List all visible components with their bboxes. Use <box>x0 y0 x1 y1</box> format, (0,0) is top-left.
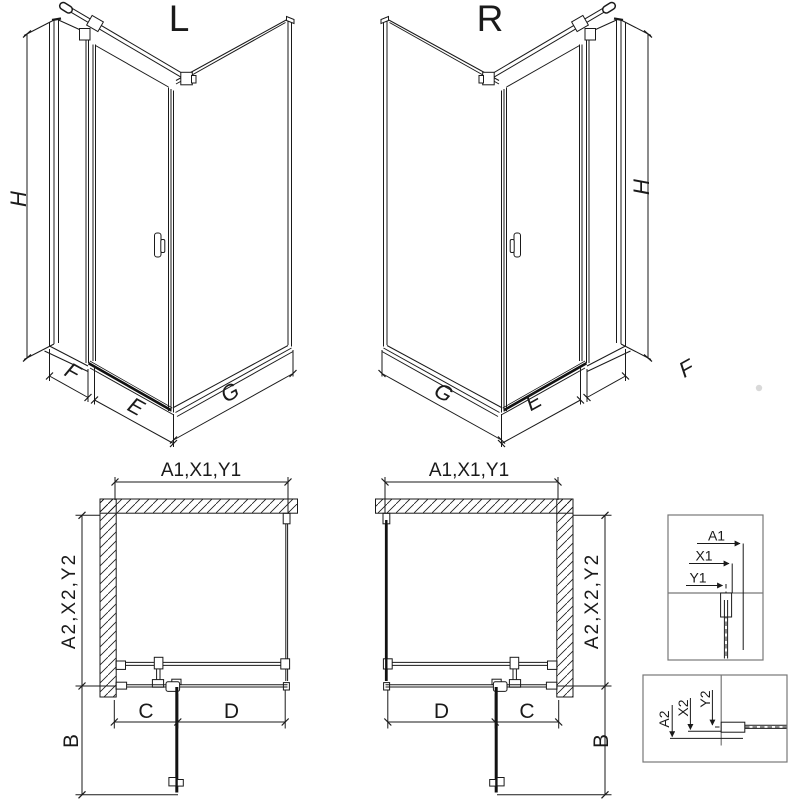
detail-y2-label: Y2 <box>697 690 713 707</box>
detail-a2-label: A2 <box>656 710 672 727</box>
plan-left-swing-dim-label: B <box>60 734 83 748</box>
plan-right-top-dim-label: A1,X1,Y1 <box>429 460 509 481</box>
technical-drawing-canvas: L H F E G R H F E G A1,X1,Y1 A2,X2,Y2 B … <box>0 0 800 800</box>
variant-label-right: R <box>477 0 504 39</box>
plan-right-swing-dim-label: B <box>590 734 613 748</box>
plan-right-side-dim-label: A2,X2,Y2 <box>582 553 603 649</box>
drawing-page: L H F E G R H F E G A1,X1,Y1 A2,X2,Y2 B … <box>0 0 800 800</box>
detail-x1-label: X1 <box>695 548 712 564</box>
watermark-dot <box>756 385 762 391</box>
dim-label-h-right: H <box>629 179 654 195</box>
plan-right-dim-d-label: D <box>434 700 449 723</box>
detail-y1-label: Y1 <box>689 570 706 586</box>
plan-right-dim-c-label: C <box>519 700 534 723</box>
detail-a1-label: A1 <box>708 528 725 544</box>
detail-x2-label: X2 <box>675 699 691 716</box>
variant-label-left: L <box>169 0 190 39</box>
plan-left-side-dim-label: A2,X2,Y2 <box>59 553 80 649</box>
plan-left-dim-c-label: C <box>138 700 153 723</box>
plan-left-dim-d-label: D <box>224 700 239 723</box>
dim-label-h-left: H <box>6 191 31 207</box>
paper-background <box>0 0 800 800</box>
plan-left-top-dim-label: A1,X1,Y1 <box>161 460 241 481</box>
